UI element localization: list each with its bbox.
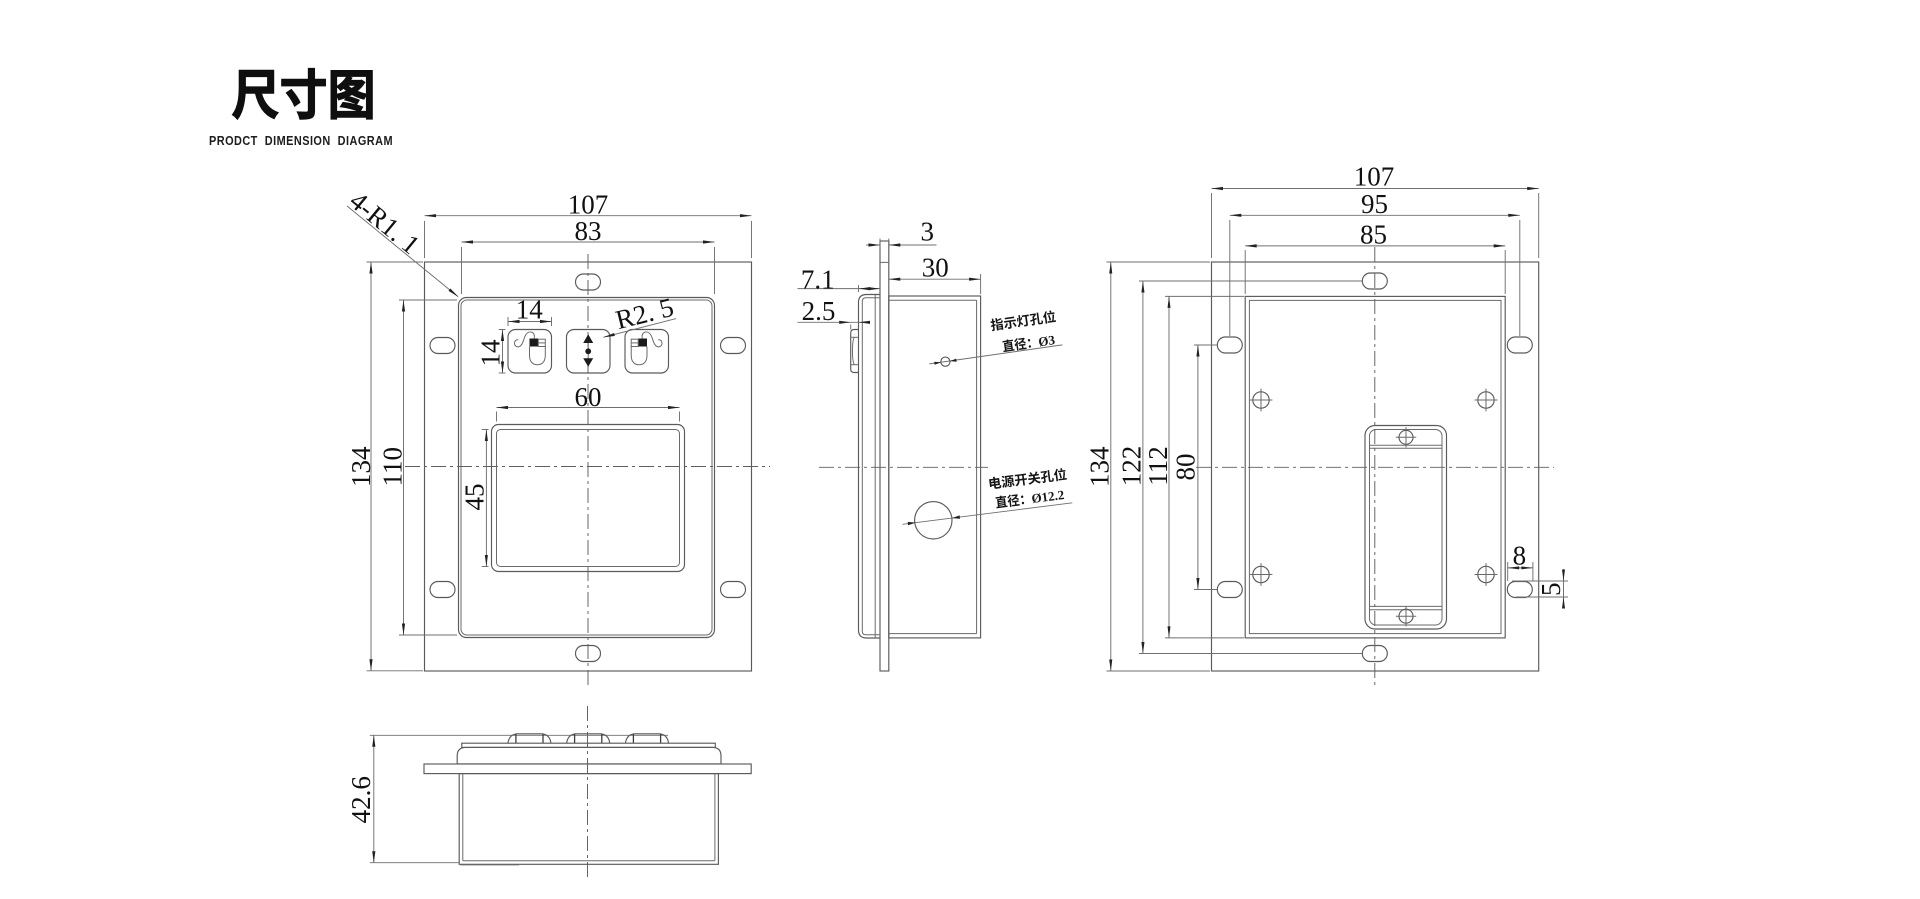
svg-text:42.6: 42.6 (346, 776, 376, 823)
svg-text:30: 30 (922, 253, 949, 283)
svg-text:110: 110 (378, 447, 408, 487)
svg-text:134: 134 (1085, 446, 1115, 487)
svg-text:8: 8 (1513, 541, 1527, 571)
svg-text:PRODCT DIMENSION DIAGRAM: PRODCT DIMENSION DIAGRAM (209, 133, 393, 148)
svg-text:60: 60 (575, 382, 602, 412)
svg-text:80: 80 (1171, 454, 1201, 481)
svg-text:14: 14 (516, 294, 544, 324)
svg-text:112: 112 (1143, 446, 1173, 486)
svg-text:95: 95 (1361, 189, 1388, 219)
svg-text:14: 14 (475, 339, 505, 367)
svg-text:7.1: 7.1 (801, 264, 835, 294)
svg-text:83: 83 (575, 216, 602, 246)
svg-text:45: 45 (459, 484, 489, 511)
svg-text:5: 5 (1536, 583, 1566, 597)
svg-text:107: 107 (568, 190, 609, 220)
svg-text:134: 134 (346, 446, 376, 487)
svg-text:2.5: 2.5 (802, 296, 836, 326)
svg-text:107: 107 (1354, 162, 1395, 192)
svg-text:Ø3: Ø3 (1037, 332, 1056, 349)
svg-text:3: 3 (921, 217, 935, 247)
svg-text:85: 85 (1360, 220, 1387, 250)
